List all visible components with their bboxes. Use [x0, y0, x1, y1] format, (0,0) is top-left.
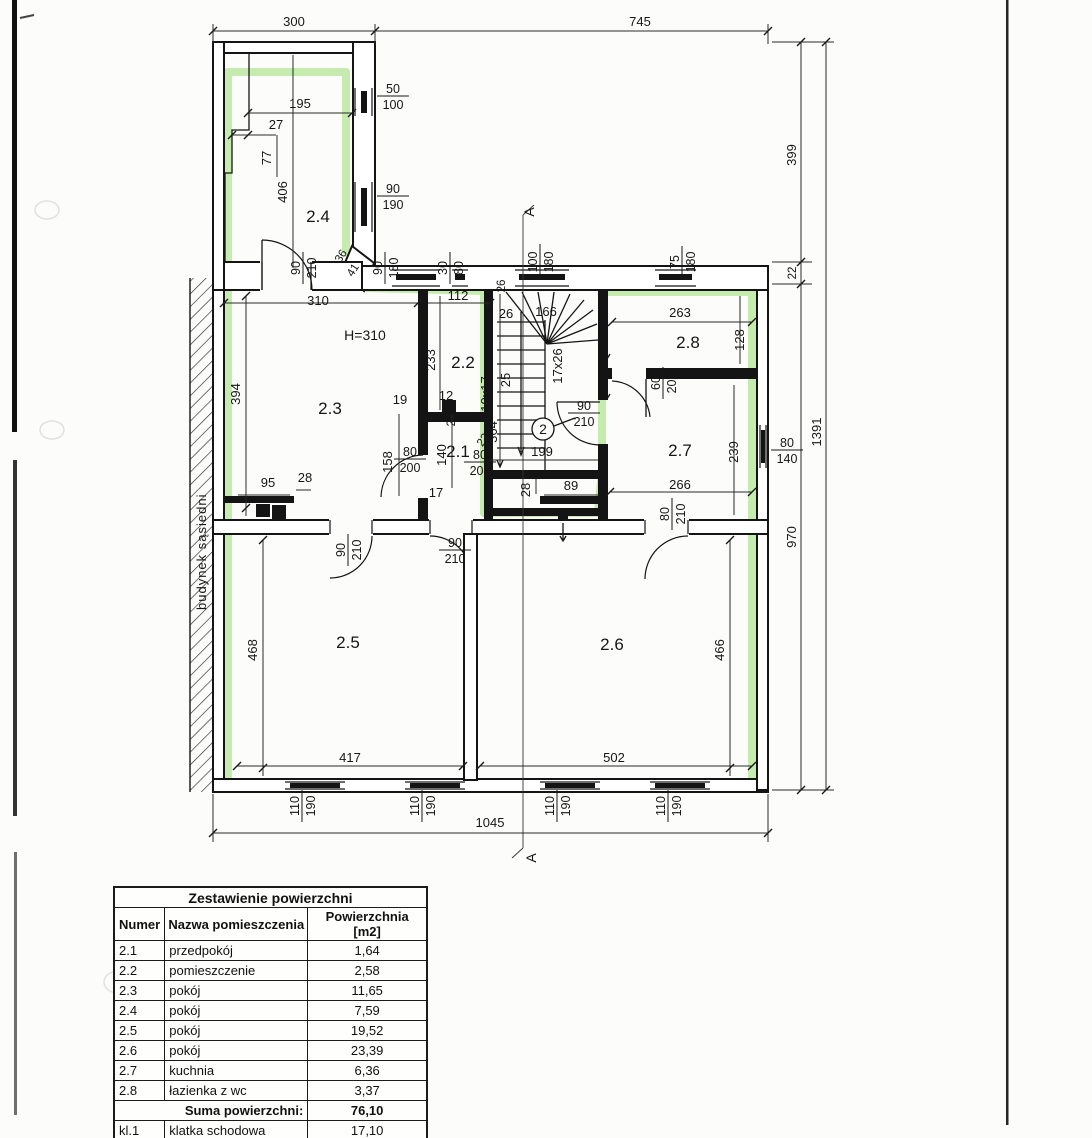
table-row: 2.6 pokój 23,39	[114, 1041, 427, 1061]
dim-266: 266	[669, 477, 691, 492]
svg-text:180: 180	[542, 252, 556, 273]
svg-text:110: 110	[654, 796, 668, 816]
apartment-number-badge: 2	[532, 418, 575, 440]
svg-text:110: 110	[543, 796, 557, 816]
room-area: 2,58	[308, 961, 427, 981]
dim-417: 417	[339, 750, 361, 765]
svg-text:75: 75	[668, 255, 682, 269]
room-height-note: H=310	[344, 327, 386, 343]
table-row: 2.2 pomieszczenie 2,58	[114, 961, 427, 981]
dim-263: 263	[669, 305, 691, 320]
dim-1045: 1045	[476, 815, 505, 830]
svg-text:80: 80	[658, 507, 672, 521]
dim-195: 195	[289, 96, 311, 111]
svg-text:90: 90	[334, 543, 348, 557]
apartment-number: 2	[539, 421, 547, 437]
dim-158: 158	[380, 451, 395, 473]
section-marker-a-top: A	[521, 207, 537, 217]
svg-text:100: 100	[383, 98, 404, 112]
stair-winder-note: 17x26	[550, 348, 565, 383]
room-number: 2.6	[114, 1041, 165, 1061]
table-header-row: Numer Nazwa pomieszczenia Powierzchnia […	[114, 908, 427, 941]
room-label-2-6: 2.6	[600, 635, 624, 654]
dim-128: 128	[732, 329, 747, 351]
svg-text:100: 100	[526, 252, 540, 273]
scanned-floor-plan-page: 2 A A	[0, 0, 1092, 1138]
room-name: pokój	[165, 1001, 308, 1021]
col-header-name: Nazwa pomieszczenia	[165, 908, 308, 941]
room-name: pomieszczenie	[165, 961, 308, 981]
window-110x190	[650, 780, 710, 791]
table-row: 2.4 pokój 7,59	[114, 1001, 427, 1021]
dim-745: 745	[629, 14, 651, 29]
room-area: 3,37	[308, 1081, 427, 1101]
room-label-2-8: 2.8	[676, 333, 700, 352]
dim-394: 394	[228, 383, 243, 405]
svg-text:80: 80	[780, 436, 794, 450]
svg-text:90: 90	[448, 536, 462, 550]
window-80x140	[758, 425, 767, 468]
dim-140: 140	[434, 444, 449, 466]
dim-199: 199	[531, 444, 553, 459]
svg-text:80: 80	[473, 448, 487, 462]
svg-text:210: 210	[350, 540, 364, 561]
dim-26-nook: 26	[446, 414, 458, 427]
dim-1391: 1391	[809, 418, 824, 447]
svg-text:30: 30	[436, 261, 450, 275]
dim-502: 502	[603, 750, 625, 765]
area-summary-table: Zestawienie powierzchni Numer Nazwa pomi…	[113, 886, 428, 1138]
dim-89: 89	[564, 478, 578, 493]
window-size-80-140: 80140	[771, 436, 803, 466]
dim-77: 77	[259, 151, 274, 165]
room-number: 2.2	[114, 961, 165, 981]
dim-233: 233	[423, 349, 438, 371]
svg-text:210: 210	[574, 415, 595, 429]
window-size-110-190-a: 110190	[288, 790, 318, 822]
dim-239: 239	[726, 441, 741, 463]
room-number: 2.4	[114, 1001, 165, 1021]
dim-406: 406	[275, 181, 290, 203]
room-label-2-7: 2.7	[668, 441, 692, 460]
room-number: 2.3	[114, 981, 165, 1001]
col-header-number: Numer	[114, 908, 165, 941]
window-size-110-190-c: 110190	[543, 790, 573, 822]
table-row: 2.1 przedpokój 1,64	[114, 941, 427, 961]
svg-text:50: 50	[386, 82, 400, 96]
door-size-90-210-room25: 90210	[334, 534, 364, 566]
svg-text:190: 190	[559, 796, 573, 817]
dim-466: 466	[712, 639, 727, 661]
interior-walls	[213, 53, 768, 780]
table-sum-row: Suma powierzchni: 76,10	[114, 1101, 427, 1121]
room-name: przedpokój	[165, 941, 308, 961]
window-size-110-190-d: 110190	[654, 790, 684, 822]
svg-text:180: 180	[684, 252, 698, 273]
stair-riser-note: 10x17	[478, 376, 493, 411]
svg-text:190: 190	[304, 796, 318, 817]
svg-text:90: 90	[577, 399, 591, 413]
svg-text:190: 190	[670, 796, 684, 817]
svg-text:200: 200	[400, 461, 421, 475]
room-area: 19,52	[308, 1021, 427, 1041]
room-number: 2.7	[114, 1061, 165, 1081]
svg-text:190: 190	[424, 796, 438, 817]
dim-26-stair: 26	[499, 306, 513, 321]
svg-text:210: 210	[445, 552, 466, 566]
window-size-90-190: 90190	[377, 182, 409, 212]
room-area: 11,65	[308, 981, 427, 1001]
svg-text:80: 80	[452, 261, 466, 275]
staircase-area: 17,10	[308, 1121, 427, 1138]
dim-22-right: 22	[787, 267, 799, 280]
dim-310: 310	[307, 293, 329, 308]
dim-970: 970	[784, 526, 799, 548]
room-label-2-1: 2.1	[446, 442, 470, 461]
room-area: 1,64	[308, 941, 427, 961]
table-row: 2.8 łazienka z wc 3,37	[114, 1081, 427, 1101]
room-area: 23,39	[308, 1041, 427, 1061]
svg-text:110: 110	[408, 796, 422, 816]
table-extra-row: kl.1 klatka schodowa 17,10	[114, 1121, 427, 1138]
room-name: łazienka z wc	[165, 1081, 308, 1101]
stair-tread-note: 25	[498, 373, 513, 387]
window-size-110-190-b: 110190	[408, 790, 438, 822]
table-title-row: Zestawienie powierzchni	[114, 887, 427, 908]
svg-text:210: 210	[305, 258, 319, 279]
neighbor-building-label: budynek sąsiedni	[194, 494, 209, 610]
room-number: 2.1	[114, 941, 165, 961]
svg-text:90: 90	[371, 261, 385, 275]
dim-26-wall: 26	[496, 280, 508, 293]
table-row: 2.3 pokój 11,65	[114, 981, 427, 1001]
dim-28-vestibule: 28	[518, 483, 533, 497]
section-marker-a-bottom: A	[523, 853, 539, 863]
svg-text:200: 200	[665, 373, 679, 394]
svg-text:180: 180	[387, 258, 401, 279]
svg-text:210: 210	[674, 504, 688, 525]
col-header-area: Powierzchnia [m2]	[308, 908, 427, 941]
sum-value: 76,10	[308, 1101, 427, 1121]
room-name: pokój	[165, 981, 308, 1001]
window-90x190	[354, 182, 374, 232]
svg-text:200: 200	[470, 464, 491, 478]
room-name: kuchnia	[165, 1061, 308, 1081]
room-number: 2.5	[114, 1021, 165, 1041]
table-row: 2.5 pokój 19,52	[114, 1021, 427, 1041]
room-label-2-4: 2.4	[306, 207, 330, 226]
window-110x190	[405, 780, 465, 791]
room-number: 2.8	[114, 1081, 165, 1101]
dim-28-left: 28	[298, 470, 312, 485]
room-name: pokój	[165, 1041, 308, 1061]
room-label-2-5: 2.5	[336, 633, 360, 652]
window-size-50-100: 50100	[377, 82, 409, 112]
dim-12: 12	[439, 388, 453, 403]
svg-text:190: 190	[383, 198, 404, 212]
room-area: 7,59	[308, 1001, 427, 1021]
dim-166: 166	[535, 304, 557, 319]
dim-399: 399	[784, 144, 799, 166]
dim-300: 300	[283, 14, 305, 29]
dim-112: 112	[448, 288, 469, 303]
room-label-2-2: 2.2	[451, 353, 475, 372]
table-row: 2.7 kuchnia 6,36	[114, 1061, 427, 1081]
svg-text:90: 90	[289, 261, 303, 275]
svg-text:140: 140	[777, 452, 798, 466]
dim-468: 468	[245, 639, 260, 661]
sum-label: Suma powierzchni:	[114, 1101, 308, 1121]
window-50x100	[354, 88, 374, 116]
window-110x190	[285, 780, 345, 791]
room-label-2-3: 2.3	[318, 399, 342, 418]
room-area: 6,36	[308, 1061, 427, 1081]
staircase-number: kl.1	[114, 1121, 165, 1138]
dim-17: 17	[429, 485, 443, 500]
window-110x190	[540, 780, 600, 791]
room-name: pokój	[165, 1021, 308, 1041]
svg-text:90: 90	[386, 182, 400, 196]
table-title: Zestawienie powierzchni	[114, 887, 427, 908]
dim-27: 27	[269, 117, 283, 132]
staircase-name: klatka schodowa	[165, 1121, 308, 1138]
svg-text:80: 80	[403, 445, 417, 459]
svg-text:110: 110	[288, 796, 302, 816]
dim-19: 19	[393, 392, 407, 407]
door-size-90-210-entrance: 90210	[568, 399, 600, 429]
dim-95: 95	[261, 475, 275, 490]
svg-text:60: 60	[649, 376, 663, 390]
